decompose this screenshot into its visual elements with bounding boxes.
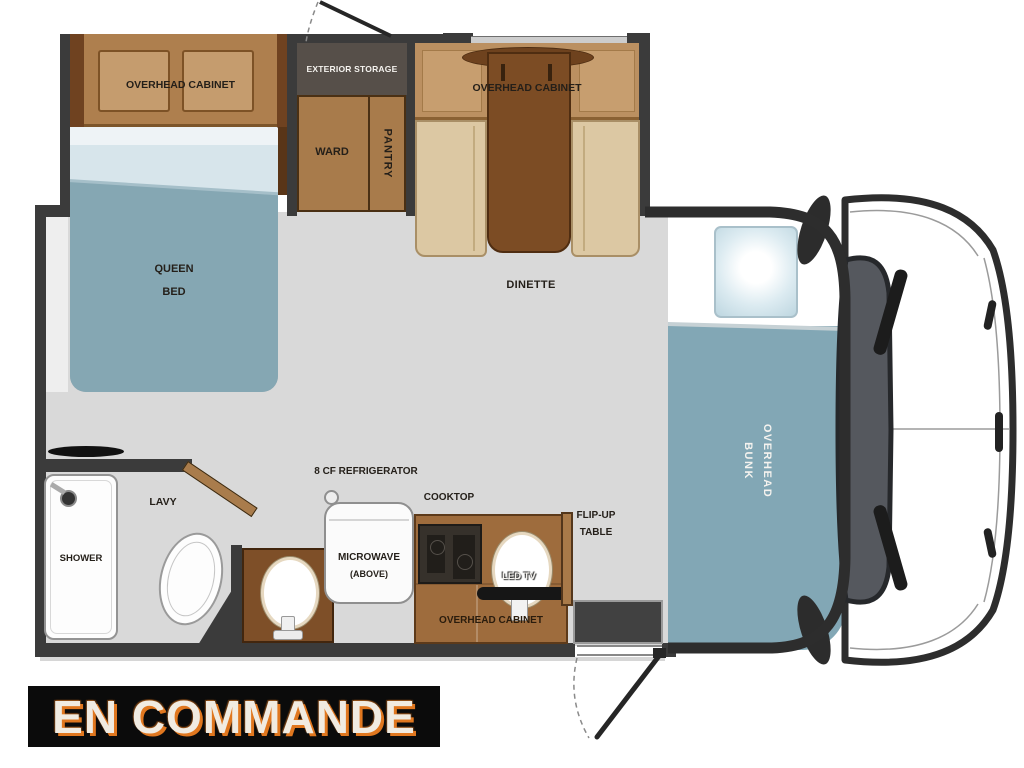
wall-bathroom [35, 459, 192, 472]
led-tv-label: LED TV [489, 572, 549, 582]
bedroom-post-left [70, 34, 84, 127]
entry-threshold [577, 645, 662, 656]
bedroom-overhead-cabinet-label: OVERHEAD CABINET [84, 80, 277, 91]
cooktop-label: COOKTOP [399, 493, 499, 503]
table-leg-mark [501, 64, 505, 81]
queen-bed-label: QUEEN BED [70, 258, 278, 304]
wall-bedroom-right [287, 34, 297, 216]
wall-shadow [40, 657, 665, 661]
bedroom-post-right-bottom [277, 127, 287, 195]
rv-floor-plan: OVERHEAD CABINET QUEEN BED EXTERIOR STOR… [0, 0, 1024, 768]
bathroom-faucet-bar-icon [273, 630, 303, 640]
fridge-top-line [329, 519, 409, 521]
refrigerator-label: 8 CF REFRIGERATOR [296, 467, 436, 477]
status-banner: EN COMMANDE [28, 686, 440, 747]
exterior-storage-label: EXTERIOR STORAGE [307, 65, 398, 74]
dinette-bench-left [415, 120, 487, 257]
wall-bottom [35, 643, 575, 657]
bed-pillow-top-strip [70, 127, 278, 145]
wall-bedroom-left [60, 34, 70, 216]
bench-seam [473, 126, 475, 251]
pantry-label-box: PANTRY [368, 95, 406, 212]
marker-light-icon [983, 299, 1003, 558]
exterior-storage: EXTERIOR STORAGE [297, 43, 407, 95]
microwave-label: MICROWAVE (ABOVE) [324, 553, 414, 579]
vanity-cabinet [242, 548, 334, 643]
burner-ring-icon [457, 554, 473, 570]
lavy-label: LAVY [133, 497, 193, 508]
status-banner-text: EN COMMANDE [52, 690, 416, 744]
dinette-bench-right [571, 120, 640, 257]
kitchen-overhead-cabinet-label: OVERHEAD CABINET [414, 616, 568, 626]
floor-white-strip [44, 212, 68, 392]
cooktop [418, 524, 482, 584]
bench-seam [583, 126, 585, 251]
table-leg-mark [548, 64, 552, 81]
entry-step [573, 600, 663, 644]
entry-door-swing-icon [574, 648, 666, 738]
flip-up-table [561, 512, 573, 606]
led-tv-icon [477, 587, 567, 600]
wall-vanity-left [231, 545, 242, 645]
wall-left-jog [35, 205, 70, 217]
ward-label: WARD [297, 147, 367, 158]
dinette-label: DINETTE [481, 280, 581, 291]
wall-dinette-right [639, 33, 650, 216]
fridge-knob-icon [324, 490, 339, 505]
overhead-bunk-label: OVERHEAD BUNK [738, 424, 776, 498]
bunk-pillow [714, 226, 798, 318]
pantry-label: PANTRY [382, 129, 393, 179]
burner-ring-icon [430, 540, 445, 555]
dinette-overhead-cabinet-label: OVERHEAD CABINET [415, 83, 639, 94]
bunk-label-box: OVERHEAD BUNK [697, 439, 817, 483]
flip-up-table-label: FLIP-UP TABLE [573, 507, 619, 541]
wiper-icon [872, 268, 909, 592]
shower-label: SHOWER [44, 554, 118, 564]
roof-vent-icon [48, 446, 124, 457]
bedroom-post-right-top [277, 34, 287, 127]
